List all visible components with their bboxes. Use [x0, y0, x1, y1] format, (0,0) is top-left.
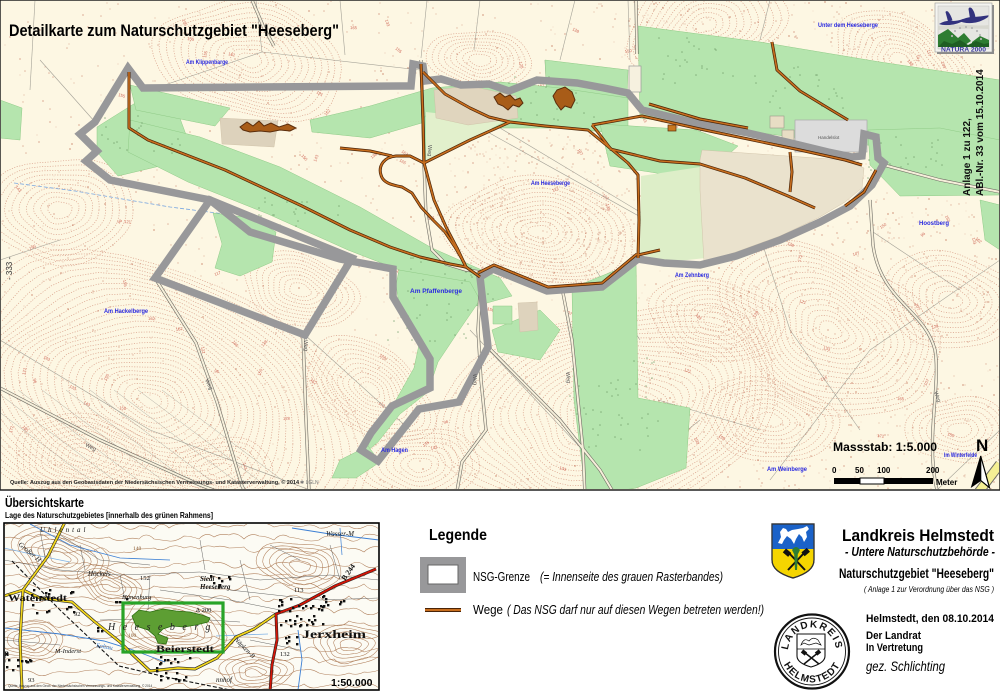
svg-text:Beierstedt: Beierstedt	[156, 645, 215, 655]
svg-text:Handelslot: Handelslot	[818, 135, 840, 140]
svg-text:Weg: Weg	[471, 374, 478, 386]
svg-text:140: 140	[133, 546, 142, 552]
svg-text:152: 152	[140, 575, 150, 582]
svg-text:165: 165	[897, 396, 905, 401]
svg-text:NSG-Grenze: NSG-Grenze	[473, 570, 530, 584]
svg-text:LANDKREIS: LANDKREIS	[780, 619, 844, 650]
svg-text:128: 128	[283, 416, 291, 421]
svg-text:- Untere Naturschutzbehörde -: - Untere Naturschutzbehörde -	[845, 544, 995, 559]
svg-text:50: 50	[855, 466, 864, 475]
svg-text:N: N	[976, 436, 988, 455]
svg-text:✱ LGLN: ✱ LGLN	[300, 480, 319, 486]
svg-text:172: 172	[877, 433, 885, 439]
svg-text:Quelle: Auszug aus den Geob. d: Quelle: Auszug aus den Geob. der Nieders…	[8, 684, 153, 688]
svg-text:Lage des Naturschutzgebietes [: Lage des Naturschutzgebietes [innerhalb …	[5, 511, 213, 520]
svg-text:Naturschutzgebiet "Heeseberg": Naturschutzgebiet "Heeseberg"	[839, 566, 994, 581]
svg-text:Hünenburg: Hünenburg	[121, 594, 152, 601]
svg-text:In Vertretung: In Vertretung	[866, 642, 923, 654]
svg-text:Hoostberg: Hoostberg	[919, 221, 949, 227]
svg-text:113: 113	[294, 587, 304, 594]
svg-text:100: 100	[128, 633, 137, 639]
svg-text:( Das NSG darf nur auf diesen: ( Das NSG darf nur auf diesen Wegen betr…	[507, 603, 764, 617]
svg-text:132: 132	[280, 651, 290, 658]
svg-text:gez. Schlichting: gez. Schlichting	[866, 658, 945, 674]
svg-text:- 333 -: - 333 -	[5, 257, 14, 280]
svg-text:Am Hackelberge: Am Hackelberge	[104, 309, 149, 315]
svg-text:Weg: Weg	[564, 372, 571, 384]
svg-text:Heeseberg: Heeseberg	[107, 622, 218, 633]
svg-text:M-Inderst: M-Inderst	[54, 648, 81, 655]
svg-text:Jerxheim: Jerxheim	[302, 627, 366, 641]
svg-text:Am Hagen: Am Hagen	[381, 448, 408, 454]
svg-text:Im Winterfelde: Im Winterfelde	[944, 453, 978, 459]
svg-text:Unter dem Heeseberge: Unter dem Heeseberge	[818, 23, 879, 29]
svg-text:165: 165	[350, 25, 358, 30]
svg-text:Der Landrat: Der Landrat	[866, 630, 921, 642]
svg-text:∆ 200: ∆ 200	[196, 607, 211, 614]
svg-text:Helmstedt, den 08.10.2014: Helmstedt, den 08.10.2014	[866, 613, 995, 625]
svg-text:NATURA 2000: NATURA 2000	[941, 47, 987, 54]
svg-text:Uhlental: Uhlental	[40, 526, 89, 534]
svg-text:Am Heeseberge: Am Heeseberge	[531, 181, 571, 187]
svg-text:Am Weinberge: Am Weinberge	[767, 467, 808, 473]
svg-text:Wasser-M: Wasser-M	[326, 530, 355, 538]
svg-text:Detailkarte zum Naturschutzgeb: Detailkarte zum Naturschutzgebiet "Heese…	[9, 21, 339, 40]
svg-text:Quelle: Auszug aus den Geobasi: Quelle: Auszug aus den Geobasisdaten der…	[10, 479, 300, 486]
svg-text:Watenstedt: Watenstedt	[8, 593, 67, 603]
svg-text:Legende: Legende	[429, 527, 487, 544]
svg-text:(= Innenseite des grauen Raste: (= Innenseite des grauen Rasterbandes)	[540, 570, 723, 584]
svg-text:1:50.000: 1:50.000	[331, 677, 373, 689]
svg-text:121: 121	[124, 219, 132, 224]
svg-text:Landkreis Helmstedt: Landkreis Helmstedt	[842, 526, 994, 545]
svg-text:Anlage 1 zu 122,: Anlage 1 zu 122,	[962, 118, 973, 196]
svg-text:Wege: Wege	[473, 603, 503, 617]
svg-text:Heeseberg: Heeseberg	[199, 583, 231, 591]
svg-text:ABl.-Nr. 33 vom 15.10.2014: ABl.-Nr. 33 vom 15.10.2014	[975, 69, 986, 196]
svg-text:Weg: Weg	[426, 145, 432, 156]
svg-text:0: 0	[832, 466, 837, 475]
svg-text:Am Pfaffenberge: Am Pfaffenberge	[410, 289, 463, 295]
svg-text:100: 100	[877, 466, 891, 475]
svg-text:Weg: Weg	[302, 340, 308, 351]
svg-text:200: 200	[926, 466, 940, 475]
svg-text:Am Zehnberg: Am Zehnberg	[675, 273, 709, 279]
svg-text:93: 93	[28, 677, 35, 684]
svg-text:Höckels: Höckels	[87, 570, 111, 578]
svg-text:92: 92	[74, 611, 81, 618]
svg-text:Am Klippenbarge: Am Klippenbarge	[186, 60, 229, 66]
svg-text:Siedl: Siedl	[200, 575, 214, 583]
svg-text:162: 162	[148, 316, 156, 321]
svg-text:Meter: Meter	[936, 478, 957, 487]
svg-text:Massstab: 1:5.000: Massstab: 1:5.000	[833, 440, 937, 454]
svg-text:nnhof: nnhof	[216, 676, 233, 684]
svg-text:( Anlage 1 zur Verordnung über: ( Anlage 1 zur Verordnung über das NSG )	[864, 585, 994, 594]
svg-text:Übersichtskarte: Übersichtskarte	[5, 495, 84, 510]
